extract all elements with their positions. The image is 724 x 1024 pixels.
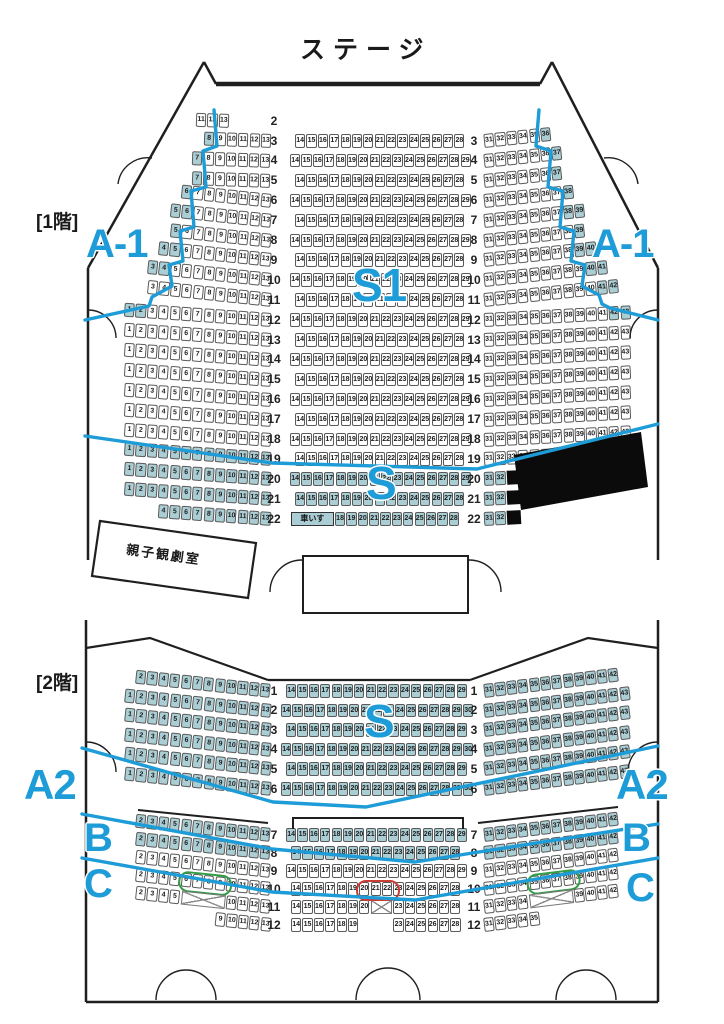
seat: 4 bbox=[158, 751, 170, 765]
seat: 41 bbox=[596, 689, 608, 704]
seat-row-block: 141516171819202122232425262728 bbox=[295, 413, 466, 427]
seat: 33 bbox=[506, 230, 518, 244]
row-number-label: 8 bbox=[464, 233, 484, 247]
seat: 11 bbox=[237, 250, 249, 264]
row-number-label: 4 bbox=[264, 153, 284, 167]
seat: 42 bbox=[607, 726, 619, 741]
seat: 31 bbox=[483, 232, 495, 246]
seat: 39 bbox=[573, 834, 585, 849]
seat: 9 bbox=[215, 822, 227, 836]
seat: 28 bbox=[449, 273, 459, 287]
seat: 24 bbox=[409, 333, 419, 347]
seat: 7 bbox=[192, 308, 203, 322]
seat: 7 bbox=[192, 151, 203, 165]
seat: 5 bbox=[169, 263, 181, 277]
seat: 17 bbox=[329, 214, 339, 228]
seat: 3 bbox=[147, 364, 158, 378]
seat: 7 bbox=[192, 715, 204, 729]
seat: 18 bbox=[336, 472, 346, 486]
seat: 14 bbox=[290, 433, 300, 447]
seat: 32 bbox=[495, 372, 506, 386]
seat: 15 bbox=[292, 782, 302, 796]
seat: 3 bbox=[147, 344, 158, 358]
row-number-label: 17 bbox=[464, 412, 484, 426]
seat: 42 bbox=[609, 406, 620, 420]
seat: 14 bbox=[291, 882, 301, 896]
seat: 32 bbox=[494, 879, 506, 894]
seat: 5 bbox=[169, 835, 181, 849]
seat: 14 bbox=[290, 313, 300, 327]
row-number-label: 21 bbox=[464, 492, 484, 506]
seat: 32 bbox=[494, 701, 506, 716]
seat: 15 bbox=[306, 174, 316, 188]
seat: 31 bbox=[483, 899, 495, 914]
seat: 17 bbox=[325, 900, 335, 914]
seat: 1 bbox=[124, 382, 135, 396]
seat: 27 bbox=[438, 433, 448, 447]
seat: 19 bbox=[352, 134, 362, 148]
seat: 25 bbox=[420, 413, 430, 427]
seat: 5 bbox=[169, 283, 181, 297]
seat: 33 bbox=[506, 190, 518, 204]
seat: 15 bbox=[302, 882, 312, 896]
seat: 25 bbox=[411, 684, 421, 698]
row-number-label: 8 bbox=[264, 846, 284, 860]
seat: 34 bbox=[517, 698, 529, 713]
seat: 41 bbox=[596, 831, 608, 846]
seat: 20 bbox=[358, 353, 368, 367]
seat: 26 bbox=[428, 882, 438, 896]
seat: 18 bbox=[341, 333, 351, 347]
seat: 2 bbox=[135, 363, 146, 377]
seat-row-block: 12345678910111213 bbox=[124, 482, 272, 506]
seat: 14 bbox=[295, 214, 305, 228]
row-number-label: 2 bbox=[264, 114, 284, 128]
seat: 5 bbox=[169, 713, 181, 727]
seat: 5 bbox=[169, 425, 180, 439]
seat: 2 bbox=[135, 868, 147, 882]
seat: 34 bbox=[518, 450, 529, 464]
wheelchair-space-label: 車いす bbox=[291, 512, 334, 526]
seat: 16 bbox=[309, 723, 319, 737]
seat: 11 bbox=[237, 470, 248, 484]
seat: 33 bbox=[506, 896, 518, 911]
seat: 5 bbox=[169, 673, 181, 687]
seat: 24 bbox=[404, 393, 414, 407]
seat: 9 bbox=[215, 287, 227, 301]
seat: 39 bbox=[574, 283, 586, 297]
seat: 12 bbox=[249, 701, 261, 715]
seat: 25 bbox=[415, 353, 425, 367]
seat: 33 bbox=[506, 290, 518, 304]
seat: 4 bbox=[158, 325, 169, 339]
seat: 23 bbox=[383, 782, 393, 796]
seat: 10 bbox=[226, 859, 238, 873]
seat: 8 bbox=[203, 308, 214, 322]
seat: 36 bbox=[540, 227, 552, 241]
seat: 11 bbox=[237, 210, 249, 224]
seat: 10 bbox=[226, 718, 238, 732]
row-number-label: 13 bbox=[264, 333, 284, 347]
seat: 8 bbox=[203, 716, 215, 730]
seat: 18 bbox=[332, 684, 342, 698]
zone-s-floor1: S bbox=[366, 460, 396, 506]
row-number-label: 11 bbox=[464, 293, 484, 307]
seat: 8 bbox=[203, 775, 215, 789]
seat: 12 bbox=[249, 271, 261, 285]
seat: 26 bbox=[423, 762, 433, 776]
seat: 34 bbox=[517, 841, 529, 856]
seat: 9 bbox=[215, 152, 226, 166]
seat: 2 bbox=[135, 304, 146, 318]
row-number-label: 7 bbox=[464, 828, 484, 842]
seat: 7 bbox=[192, 856, 204, 870]
seat: 18 bbox=[336, 393, 346, 407]
seat: 4 bbox=[158, 365, 169, 379]
seat: 16 bbox=[318, 413, 328, 427]
seat: 26 bbox=[427, 353, 437, 367]
seat: 10 bbox=[226, 310, 237, 324]
seat: 34 bbox=[517, 229, 529, 243]
seat: 14 bbox=[290, 194, 300, 208]
seat: 17 bbox=[329, 413, 339, 427]
seat: 2 bbox=[135, 729, 147, 743]
seat: 27 bbox=[438, 273, 448, 287]
seat: 22 bbox=[381, 154, 391, 168]
seat: 16 bbox=[313, 154, 323, 168]
seat: 12 bbox=[249, 451, 260, 465]
row-number-label: 19 bbox=[464, 452, 484, 466]
seat: 24 bbox=[405, 900, 415, 914]
seat: 34 bbox=[517, 823, 529, 838]
seat: 20 bbox=[349, 704, 359, 718]
seat: 10 bbox=[226, 738, 238, 752]
seat: 8 bbox=[203, 736, 215, 750]
seat-row-block: 31323334353637383940414243 bbox=[484, 305, 632, 327]
seat: 21 bbox=[371, 846, 381, 860]
seat: 24 bbox=[395, 704, 405, 718]
seat: 5 bbox=[169, 203, 181, 217]
seat: 5 bbox=[169, 853, 181, 867]
seat: 4 bbox=[158, 731, 170, 745]
seat: 10 bbox=[226, 429, 237, 443]
seat-row-block: 78910111213 bbox=[192, 171, 272, 188]
seat: 37 bbox=[552, 349, 563, 363]
seat: 4 bbox=[158, 425, 169, 439]
seat: 37 bbox=[551, 146, 563, 160]
seat: 16 bbox=[318, 452, 328, 466]
seat: 11 bbox=[237, 230, 249, 244]
seat: 16 bbox=[314, 846, 324, 860]
row-number-label: 5 bbox=[464, 762, 484, 776]
seat: 9 bbox=[215, 172, 226, 186]
seat: 6 bbox=[181, 426, 192, 440]
seat: 14 bbox=[290, 234, 300, 248]
seat: 25 bbox=[415, 273, 425, 287]
seat-row-block: 141516171819202122232425262728 bbox=[295, 134, 466, 148]
seat: 34 bbox=[518, 351, 529, 365]
seat: 17 bbox=[315, 743, 325, 757]
seat: 31 bbox=[483, 917, 495, 932]
seat: 18 bbox=[332, 762, 342, 776]
seat: 36 bbox=[540, 167, 552, 181]
seat: 24 bbox=[409, 174, 419, 188]
seat: 10 bbox=[226, 288, 238, 302]
seat: 26 bbox=[432, 214, 442, 228]
seat: 10 bbox=[226, 209, 238, 223]
seat: 11 bbox=[237, 700, 249, 714]
seat: 5 bbox=[169, 889, 181, 903]
seat: 22 bbox=[386, 214, 396, 228]
seat: 25 bbox=[411, 723, 421, 737]
seat: 27 bbox=[443, 214, 453, 228]
seat: 41 bbox=[596, 885, 608, 900]
seat: 12 bbox=[249, 331, 260, 345]
seat: 12 bbox=[249, 898, 261, 912]
seat: 18 bbox=[336, 433, 346, 447]
seat: 34 bbox=[517, 189, 529, 203]
seat: 26 bbox=[418, 743, 428, 757]
seat: 3 bbox=[147, 851, 159, 865]
seat: 24 bbox=[404, 234, 414, 248]
seat: 14 bbox=[295, 413, 305, 427]
seat: 6 bbox=[181, 733, 193, 747]
seat: 2 bbox=[135, 403, 146, 417]
seat: 12 bbox=[249, 844, 261, 858]
seat: 35 bbox=[529, 390, 540, 404]
seat: 28 bbox=[445, 762, 455, 776]
seat: 41 bbox=[596, 280, 608, 294]
seat: 19 bbox=[352, 333, 362, 347]
seat: 41 bbox=[596, 747, 608, 762]
seat-row-block: 111213 bbox=[196, 113, 231, 128]
seat: 41 bbox=[596, 813, 608, 828]
seat: 9 bbox=[215, 429, 226, 443]
seat: 15 bbox=[306, 134, 316, 148]
seat: 28 bbox=[454, 134, 464, 148]
seat: 31 bbox=[483, 863, 495, 878]
seat: 25 bbox=[416, 846, 426, 860]
seat: 28 bbox=[454, 333, 464, 347]
seat: 21 bbox=[375, 134, 385, 148]
seat: 35 bbox=[529, 128, 541, 142]
seat: 18 bbox=[327, 782, 337, 796]
row-number-label: 13 bbox=[464, 333, 484, 347]
seat: 24 bbox=[404, 194, 414, 208]
seat: 15 bbox=[297, 684, 307, 698]
seat: 31 bbox=[483, 761, 495, 776]
seat: 9 bbox=[215, 858, 227, 872]
seat: 38 bbox=[563, 348, 574, 362]
seat: 10 bbox=[226, 823, 238, 837]
seat: 4 bbox=[158, 816, 170, 830]
seat: 7 bbox=[192, 185, 204, 199]
seat: 10 bbox=[226, 152, 237, 166]
seat: 35 bbox=[529, 370, 540, 384]
row-number-label: 9 bbox=[264, 253, 284, 267]
seat: 33 bbox=[506, 914, 518, 929]
seat: 15 bbox=[302, 846, 312, 860]
seat: 35 bbox=[529, 310, 540, 324]
seat: 39 bbox=[574, 263, 586, 277]
seat: 41 bbox=[596, 767, 608, 782]
seat: 11 bbox=[237, 878, 249, 892]
seat: 6 bbox=[181, 184, 193, 198]
seat: 18 bbox=[337, 846, 347, 860]
seat: 14 bbox=[295, 293, 305, 307]
seat: 27 bbox=[438, 353, 448, 367]
row-number-label: 11 bbox=[464, 900, 484, 914]
seat: 6 bbox=[181, 486, 192, 500]
seat: 39 bbox=[575, 427, 586, 441]
seat: 27 bbox=[438, 154, 448, 168]
seat: 22 bbox=[381, 393, 391, 407]
seat: 12 bbox=[207, 113, 218, 127]
seat: 41 bbox=[597, 327, 608, 341]
seat: 26 bbox=[418, 782, 428, 796]
seat: 17 bbox=[329, 293, 339, 307]
seat: 5 bbox=[169, 445, 180, 459]
seat: 32 bbox=[495, 451, 506, 465]
seat: 14 bbox=[291, 900, 301, 914]
seat: 38 bbox=[563, 408, 574, 422]
seat: 35 bbox=[529, 268, 541, 282]
seat: 27 bbox=[443, 293, 453, 307]
seat: 1 bbox=[124, 708, 136, 722]
seat: 4 bbox=[158, 870, 170, 884]
seat: 38 bbox=[562, 284, 574, 298]
seat: 43 bbox=[620, 325, 631, 339]
seat: 21 bbox=[370, 433, 380, 447]
seat: 7 bbox=[192, 754, 204, 768]
seat: 14 bbox=[286, 828, 296, 842]
seat: 42 bbox=[609, 366, 620, 380]
seat: 38 bbox=[562, 835, 574, 850]
seat: 41 bbox=[597, 406, 608, 420]
seat: 16 bbox=[304, 782, 314, 796]
seat: 40 bbox=[585, 670, 597, 685]
seat: 37 bbox=[551, 285, 563, 299]
seat: 6 bbox=[181, 714, 193, 728]
seat: 19 bbox=[347, 433, 357, 447]
seat: 11 bbox=[237, 430, 248, 444]
seat: 19 bbox=[338, 782, 348, 796]
seat: 24 bbox=[409, 134, 419, 148]
seat: 28 bbox=[454, 174, 464, 188]
seat: 9 bbox=[215, 389, 226, 403]
seat: 19 bbox=[343, 864, 353, 878]
seat: 1 bbox=[124, 303, 135, 317]
seat: 23 bbox=[388, 864, 398, 878]
seat: 16 bbox=[313, 433, 323, 447]
seat: 6 bbox=[181, 406, 192, 420]
zone-a2-right: A2 bbox=[616, 764, 668, 806]
seat-row-block: 141516171819202122232425262728 bbox=[295, 373, 466, 387]
seat: 40 bbox=[585, 868, 597, 883]
seat: 11 bbox=[237, 351, 248, 365]
seat: 9 bbox=[215, 488, 226, 502]
seat: 33 bbox=[506, 431, 517, 445]
seat: 25 bbox=[420, 214, 430, 228]
seat: 25 bbox=[420, 373, 430, 387]
seat: 27 bbox=[443, 413, 453, 427]
seat: 28 bbox=[440, 704, 450, 718]
seat: 12 bbox=[249, 916, 261, 930]
seat: 7 bbox=[192, 225, 204, 239]
seat: 35 bbox=[529, 148, 541, 162]
seat: 31 bbox=[483, 881, 495, 896]
seat: 3 bbox=[147, 424, 158, 438]
seat: 23 bbox=[392, 234, 402, 248]
seat: 2 bbox=[135, 670, 147, 684]
seat: 41 bbox=[597, 346, 608, 360]
seat: 14 bbox=[286, 864, 296, 878]
seat: 32 bbox=[494, 897, 506, 912]
seat: 5 bbox=[169, 752, 181, 766]
seat: 43 bbox=[619, 705, 631, 720]
seat: 10 bbox=[226, 370, 237, 384]
seat: 28 bbox=[454, 413, 464, 427]
seat: 3 bbox=[147, 671, 159, 685]
seat: 1 bbox=[124, 747, 136, 761]
seat: 26 bbox=[432, 293, 442, 307]
highlight-ring bbox=[356, 880, 399, 901]
seat: 20 bbox=[354, 684, 364, 698]
seat: 35 bbox=[529, 168, 541, 182]
seat: 28 bbox=[454, 373, 464, 387]
seat: 17 bbox=[324, 154, 334, 168]
seat: 12 bbox=[249, 491, 260, 505]
seat: 10 bbox=[226, 509, 237, 523]
seat: 16 bbox=[313, 393, 323, 407]
seat: 17 bbox=[324, 194, 334, 208]
seat: 17 bbox=[325, 846, 335, 860]
seat: 24 bbox=[405, 918, 415, 932]
seat: 41 bbox=[597, 426, 608, 440]
seat: 27 bbox=[429, 704, 439, 718]
seat: 21 bbox=[375, 413, 385, 427]
seat: 24 bbox=[400, 864, 410, 878]
seat: 42 bbox=[608, 279, 620, 293]
seat: 14 bbox=[295, 253, 305, 267]
seat: 20 bbox=[358, 512, 368, 526]
row-number-label: 20 bbox=[264, 472, 284, 486]
seat: 17 bbox=[325, 882, 335, 896]
seat: 17 bbox=[324, 273, 334, 287]
seat: 12 bbox=[249, 862, 261, 876]
seat: 33 bbox=[506, 824, 518, 839]
seat: 28 bbox=[449, 512, 459, 526]
seat: 23 bbox=[392, 433, 402, 447]
seat: 22 bbox=[386, 373, 396, 387]
seat: 35 bbox=[528, 911, 540, 926]
seat: 23 bbox=[392, 512, 402, 526]
seat: 22 bbox=[386, 413, 396, 427]
seat: 32 bbox=[495, 511, 506, 525]
seat: 33 bbox=[506, 860, 518, 875]
seat: 5 bbox=[169, 346, 180, 360]
seat: 38 bbox=[562, 244, 574, 258]
seat: 24 bbox=[395, 782, 405, 796]
seat: 24 bbox=[409, 452, 419, 466]
seat: 25 bbox=[416, 882, 426, 896]
seat: 33 bbox=[506, 351, 517, 365]
seat: 38 bbox=[562, 751, 574, 766]
seat: 14 bbox=[290, 353, 300, 367]
seat: 14 bbox=[295, 373, 305, 387]
seat: 18 bbox=[341, 134, 351, 148]
seat: 28 bbox=[450, 918, 460, 932]
